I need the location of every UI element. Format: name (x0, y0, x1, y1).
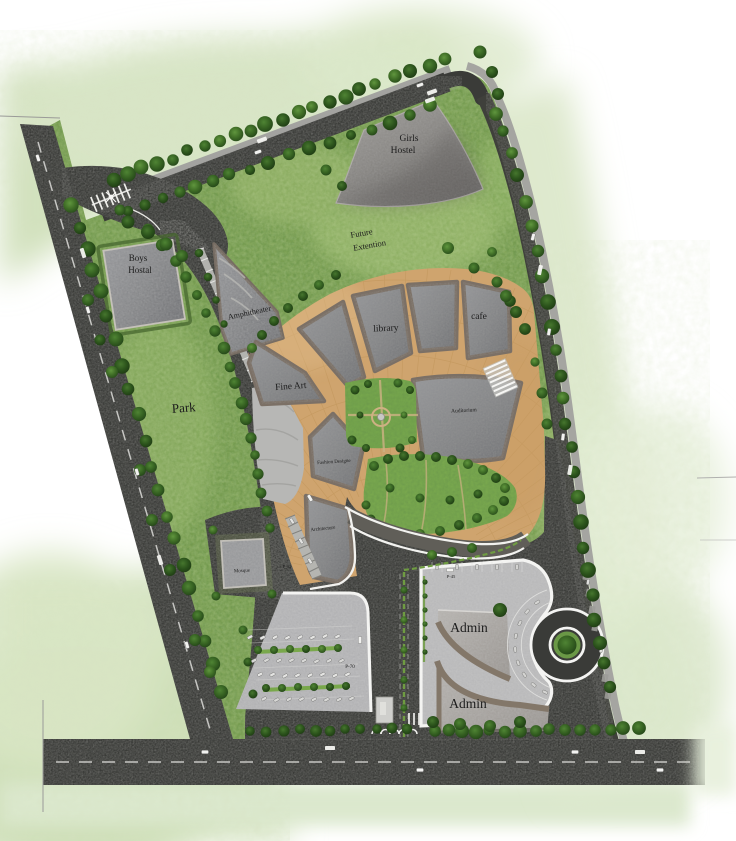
svg-text:P-32: P-32 (283, 564, 292, 569)
svg-text:cafe: cafe (471, 311, 487, 322)
svg-text:Park: Park (171, 399, 196, 416)
svg-text:Admin: Admin (450, 620, 488, 635)
svg-text:Hostel: Hostel (391, 146, 416, 156)
svg-text:Admin: Admin (449, 696, 487, 711)
svg-text:Girls: Girls (400, 134, 419, 144)
svg-text:library: library (373, 323, 399, 334)
svg-text:P-45: P-45 (447, 574, 456, 579)
svg-text:P-70: P-70 (345, 665, 355, 670)
svg-text:Hostal: Hostal (128, 265, 152, 275)
svg-text:Mosque: Mosque (234, 569, 251, 575)
svg-text:Boys: Boys (129, 253, 148, 263)
